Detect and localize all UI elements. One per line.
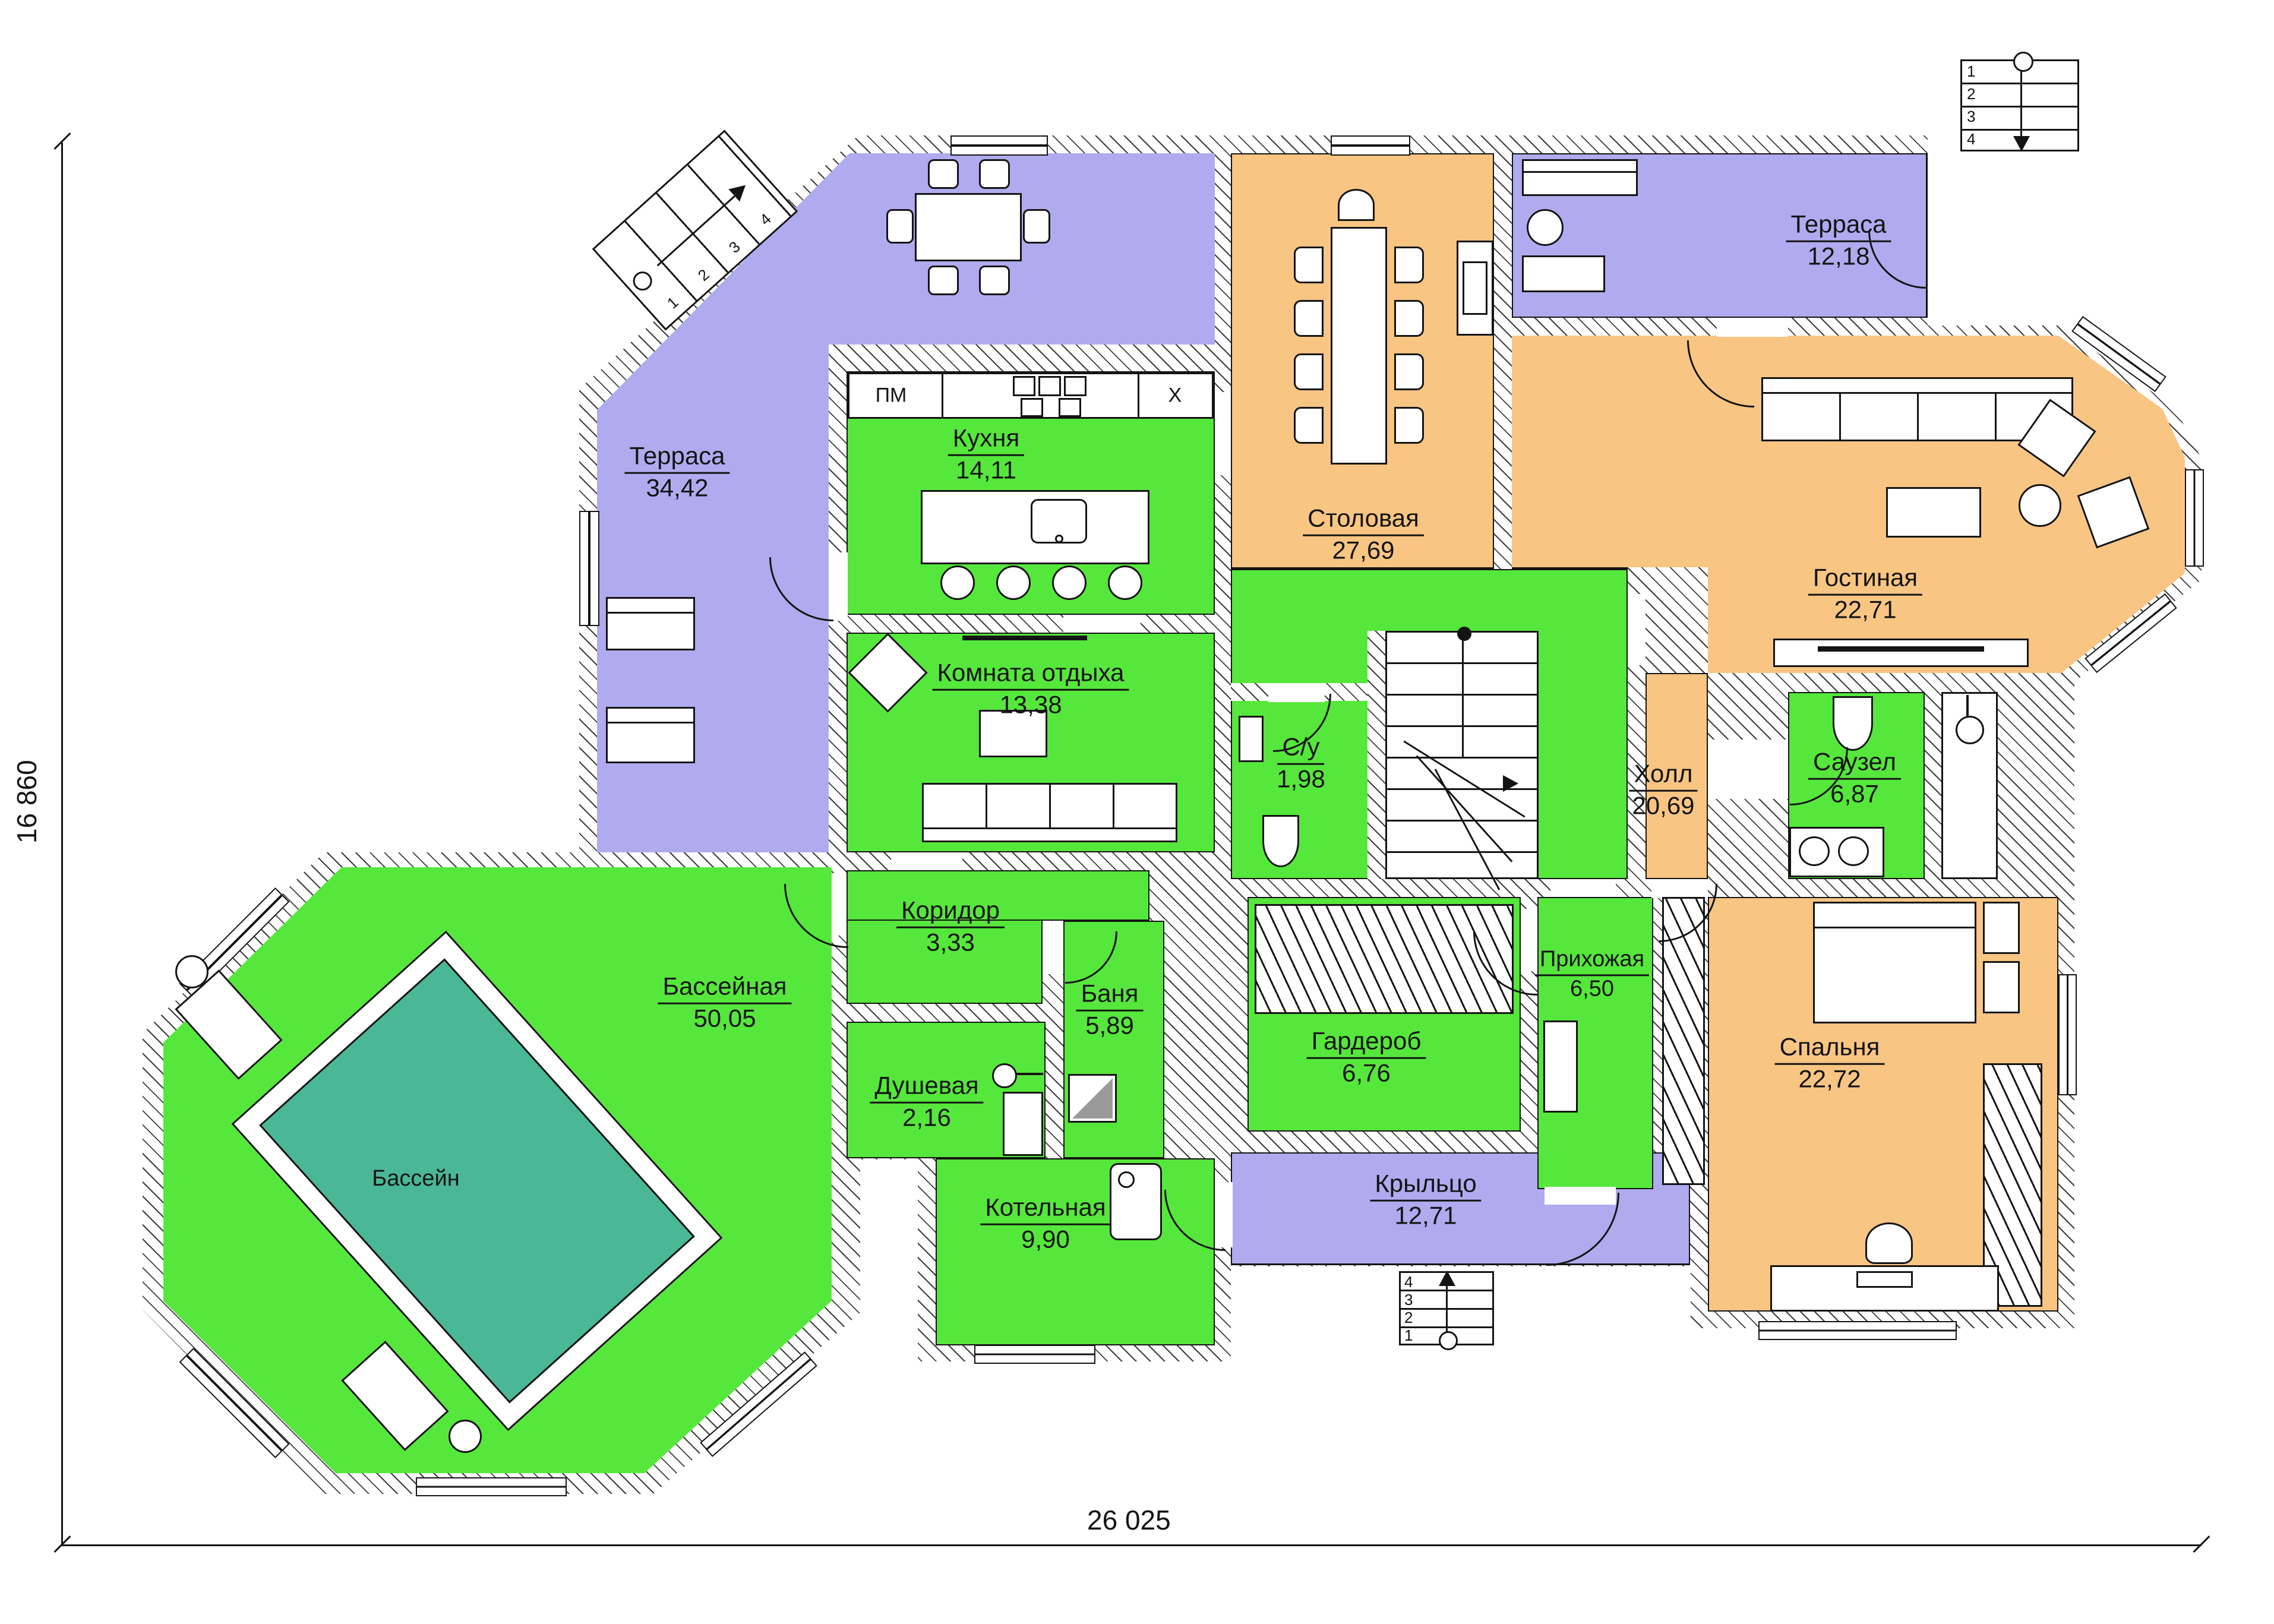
bar-stool [996, 565, 1031, 600]
dishwasher-label: ПМ [876, 384, 907, 407]
label-lounge: Комната отдыха 13,38 [933, 659, 1129, 720]
room-name: Прихожая [1535, 946, 1649, 976]
step-number: 4 [1404, 1273, 1413, 1291]
room-area: 13,38 [933, 691, 1129, 719]
label-entry: Прихожая 6,50 [1535, 946, 1649, 1001]
sofa-divider [1839, 392, 1841, 441]
room-area: 9,90 [980, 1225, 1110, 1254]
chair [928, 266, 959, 295]
door-gap [1215, 392, 1231, 475]
chair [1394, 300, 1424, 337]
step-number: 3 [725, 238, 744, 257]
room-name: Бассейная [658, 972, 791, 1004]
label-bedroom: Спальня 22,72 [1775, 1033, 1885, 1094]
room-area: 6,87 [1808, 780, 1901, 808]
dim-line-horizontal [61, 1544, 2202, 1546]
stove-burner [1038, 376, 1061, 396]
pool-table [449, 1420, 482, 1453]
sofa-divider [1113, 783, 1114, 827]
label-wc: С/у 1,98 [1277, 733, 1325, 794]
chair [979, 266, 1010, 295]
room-area: 50,05 [658, 1004, 791, 1033]
shower-stem [1966, 695, 1969, 718]
dim-line-vertical [61, 143, 63, 1546]
fireplace-insert [1463, 261, 1487, 315]
sofa-divider [1049, 783, 1051, 827]
door-gap [1708, 740, 1788, 799]
dim-width-text: 26 025 [1087, 1505, 1171, 1535]
round-table [1527, 209, 1564, 246]
basin [1799, 836, 1830, 866]
label-bathroom: Саузел 6,87 [1808, 748, 1901, 809]
clothes-rail [1255, 904, 1514, 1014]
label-pool: Бассейн [372, 1166, 459, 1192]
stair-main [1385, 631, 1539, 879]
line-porch-edge [1231, 1263, 1690, 1265]
stove-burner [1059, 398, 1081, 417]
window [416, 1477, 567, 1496]
window [1331, 135, 1410, 156]
label-corridor: Коридор 3,33 [896, 896, 1005, 958]
room-name: Крыльцо [1370, 1170, 1481, 1202]
toilet [1833, 696, 1873, 751]
sink [1239, 716, 1264, 762]
room-name: Гардероб [1307, 1027, 1426, 1059]
bed [1813, 902, 1976, 1023]
chair [886, 209, 914, 244]
bed-line [1813, 927, 1976, 928]
shower-head [1956, 716, 1984, 744]
stove-burner [1021, 398, 1043, 417]
room-name: Душевая [870, 1072, 983, 1104]
room-area: 12,71 [1370, 1202, 1481, 1230]
chair [1338, 189, 1375, 221]
step-number: 4 [756, 210, 775, 229]
shower-tray [1003, 1092, 1043, 1156]
step-number: 2 [1967, 85, 1975, 103]
step-number: 1 [1967, 62, 1975, 81]
tv-cabinet [1773, 639, 2029, 667]
door-gap [1628, 594, 1646, 665]
chair [1394, 407, 1424, 444]
stair-porch: 4 3 2 1 [1399, 1271, 1494, 1345]
door-gap [1043, 921, 1063, 974]
room-name: Кухня [948, 424, 1024, 456]
room-name: Холл [1629, 760, 1698, 792]
room-name: Терраса [624, 442, 729, 474]
shower-mixer [992, 1063, 1017, 1088]
bench-line [606, 612, 695, 614]
window [1758, 1321, 1957, 1340]
room-name: Спальня [1775, 1033, 1885, 1065]
door-gap [1550, 879, 1616, 897]
line-dining-hall [1231, 567, 1494, 569]
step-number: 1 [664, 293, 682, 313]
boiler-sink [1110, 1163, 1162, 1240]
bench [606, 707, 695, 763]
label-terrace-left: Терраса 34,42 [624, 442, 729, 503]
chair [979, 159, 1010, 189]
entry-cabinet [1543, 1020, 1578, 1113]
room-name: Гостиная [1808, 564, 1922, 596]
room-area: 20,69 [1629, 792, 1698, 820]
room-name: С/у [1278, 733, 1325, 765]
line-band-hall [1512, 567, 1628, 569]
nightstand [1983, 961, 2020, 1013]
dishwasher-text: ПМ [876, 384, 907, 406]
bar-stool [1052, 565, 1087, 600]
bench-line [606, 722, 695, 723]
boiler-tap [1118, 1171, 1135, 1188]
sauna-heater [1068, 1074, 1117, 1123]
step-number: 2 [694, 266, 713, 285]
room-area: 6,76 [1307, 1059, 1426, 1088]
label-hall: Холл 20,69 [1629, 760, 1698, 821]
label-living: Гостиная 22,71 [1808, 564, 1922, 625]
coffee-table [1886, 487, 1981, 538]
lounger [1522, 159, 1638, 196]
room-name: Комната отдыха [933, 659, 1129, 691]
label-dining: Столовая 27,69 [1303, 504, 1424, 565]
label-boiler: Котельная 9,90 [980, 1193, 1110, 1255]
dim-height-text: 16 860 [11, 760, 42, 843]
bench [606, 597, 695, 650]
label-pool-hall: Бассейная 50,05 [658, 972, 791, 1034]
counter-divider [942, 372, 943, 419]
window [2185, 469, 2204, 567]
tv-line [962, 636, 1087, 640]
chair [1294, 247, 1324, 283]
lounger-line [1522, 171, 1638, 173]
door-gap [1717, 318, 1788, 337]
room-name: Столовая [1303, 504, 1424, 536]
room-name: Бассейн [372, 1166, 459, 1191]
sink-faucet [1055, 535, 1063, 543]
bar-stool [940, 565, 975, 600]
room-area: 1,98 [1277, 765, 1325, 794]
chair [928, 159, 959, 189]
room-name: Баня [1076, 980, 1144, 1012]
label-banya: Баня 5,89 [1076, 980, 1144, 1041]
dining-table [1331, 227, 1387, 465]
door-gap [891, 852, 962, 870]
room-area: 3,33 [896, 928, 1005, 957]
desk-chair [1865, 1222, 1913, 1264]
chair [1394, 247, 1424, 283]
round-table [2019, 484, 2061, 527]
nightstand [1983, 902, 2020, 954]
window [579, 511, 599, 626]
label-shower: Душевая 2,16 [870, 1072, 983, 1133]
floor-plan: ПМ X [0, 0, 2274, 1624]
dim-width: 26 025 [1087, 1504, 1171, 1536]
stove-burner [1013, 376, 1035, 396]
monitor [1856, 1271, 1913, 1288]
room-area: 14,11 [948, 456, 1024, 485]
lounger [1522, 255, 1605, 292]
room-area: 5,89 [1076, 1012, 1144, 1040]
label-terrace-top: Терраса 12,18 [1786, 210, 1891, 271]
chair [1294, 353, 1324, 390]
room-area: 27,69 [1303, 536, 1424, 565]
sofa-divider [986, 783, 987, 827]
counter-divider [1138, 372, 1139, 419]
room-name: Терраса [1786, 210, 1891, 242]
bar-stool [1108, 565, 1142, 600]
room-area: 6,50 [1535, 976, 1649, 1002]
room-area: 34,42 [624, 474, 729, 503]
outdoor-table [915, 193, 1022, 261]
step-number: 4 [1967, 130, 1975, 149]
sofa-divider [1995, 392, 1997, 441]
fridge-text: X [1168, 384, 1182, 406]
chair [1023, 209, 1050, 244]
chair [1294, 407, 1324, 444]
chair [1294, 300, 1324, 337]
label-wardrobe: Гардероб 6,76 [1307, 1027, 1426, 1088]
label-porch: Крыльцо 12,71 [1370, 1170, 1481, 1231]
label-kitchen: Кухня 14,11 [948, 424, 1024, 485]
room-area: 12,18 [1786, 242, 1891, 271]
room-name: Саузел [1808, 748, 1901, 780]
pool-table [175, 955, 209, 988]
door-gap [1063, 615, 1141, 633]
window [974, 1345, 1095, 1364]
step-number: 2 [1404, 1309, 1413, 1327]
sofa-back [922, 827, 1177, 829]
wall-stairs-left [1367, 631, 1385, 879]
room-area: 2,16 [870, 1104, 983, 1132]
dim-height: 16 860 [11, 760, 43, 843]
window [2058, 974, 2077, 1095]
tv-line [1818, 646, 1984, 652]
step-number: 3 [1967, 108, 1975, 126]
fridge-label: X [1168, 384, 1182, 407]
step-number: 3 [1404, 1291, 1413, 1309]
room-area: 22,72 [1775, 1065, 1885, 1094]
step-number: 1 [1404, 1326, 1413, 1345]
window [950, 135, 1048, 156]
chair [1394, 353, 1424, 390]
sofa-divider [1917, 392, 1919, 441]
stove-burner [1064, 376, 1087, 396]
room-area: 22,71 [1808, 596, 1922, 624]
room-name: Коридор [896, 896, 1005, 928]
basin [1838, 836, 1869, 866]
toilet [1262, 815, 1299, 867]
stair-top-right: 1 2 3 4 [1960, 59, 2079, 151]
room-name: Котельная [980, 1193, 1110, 1225]
